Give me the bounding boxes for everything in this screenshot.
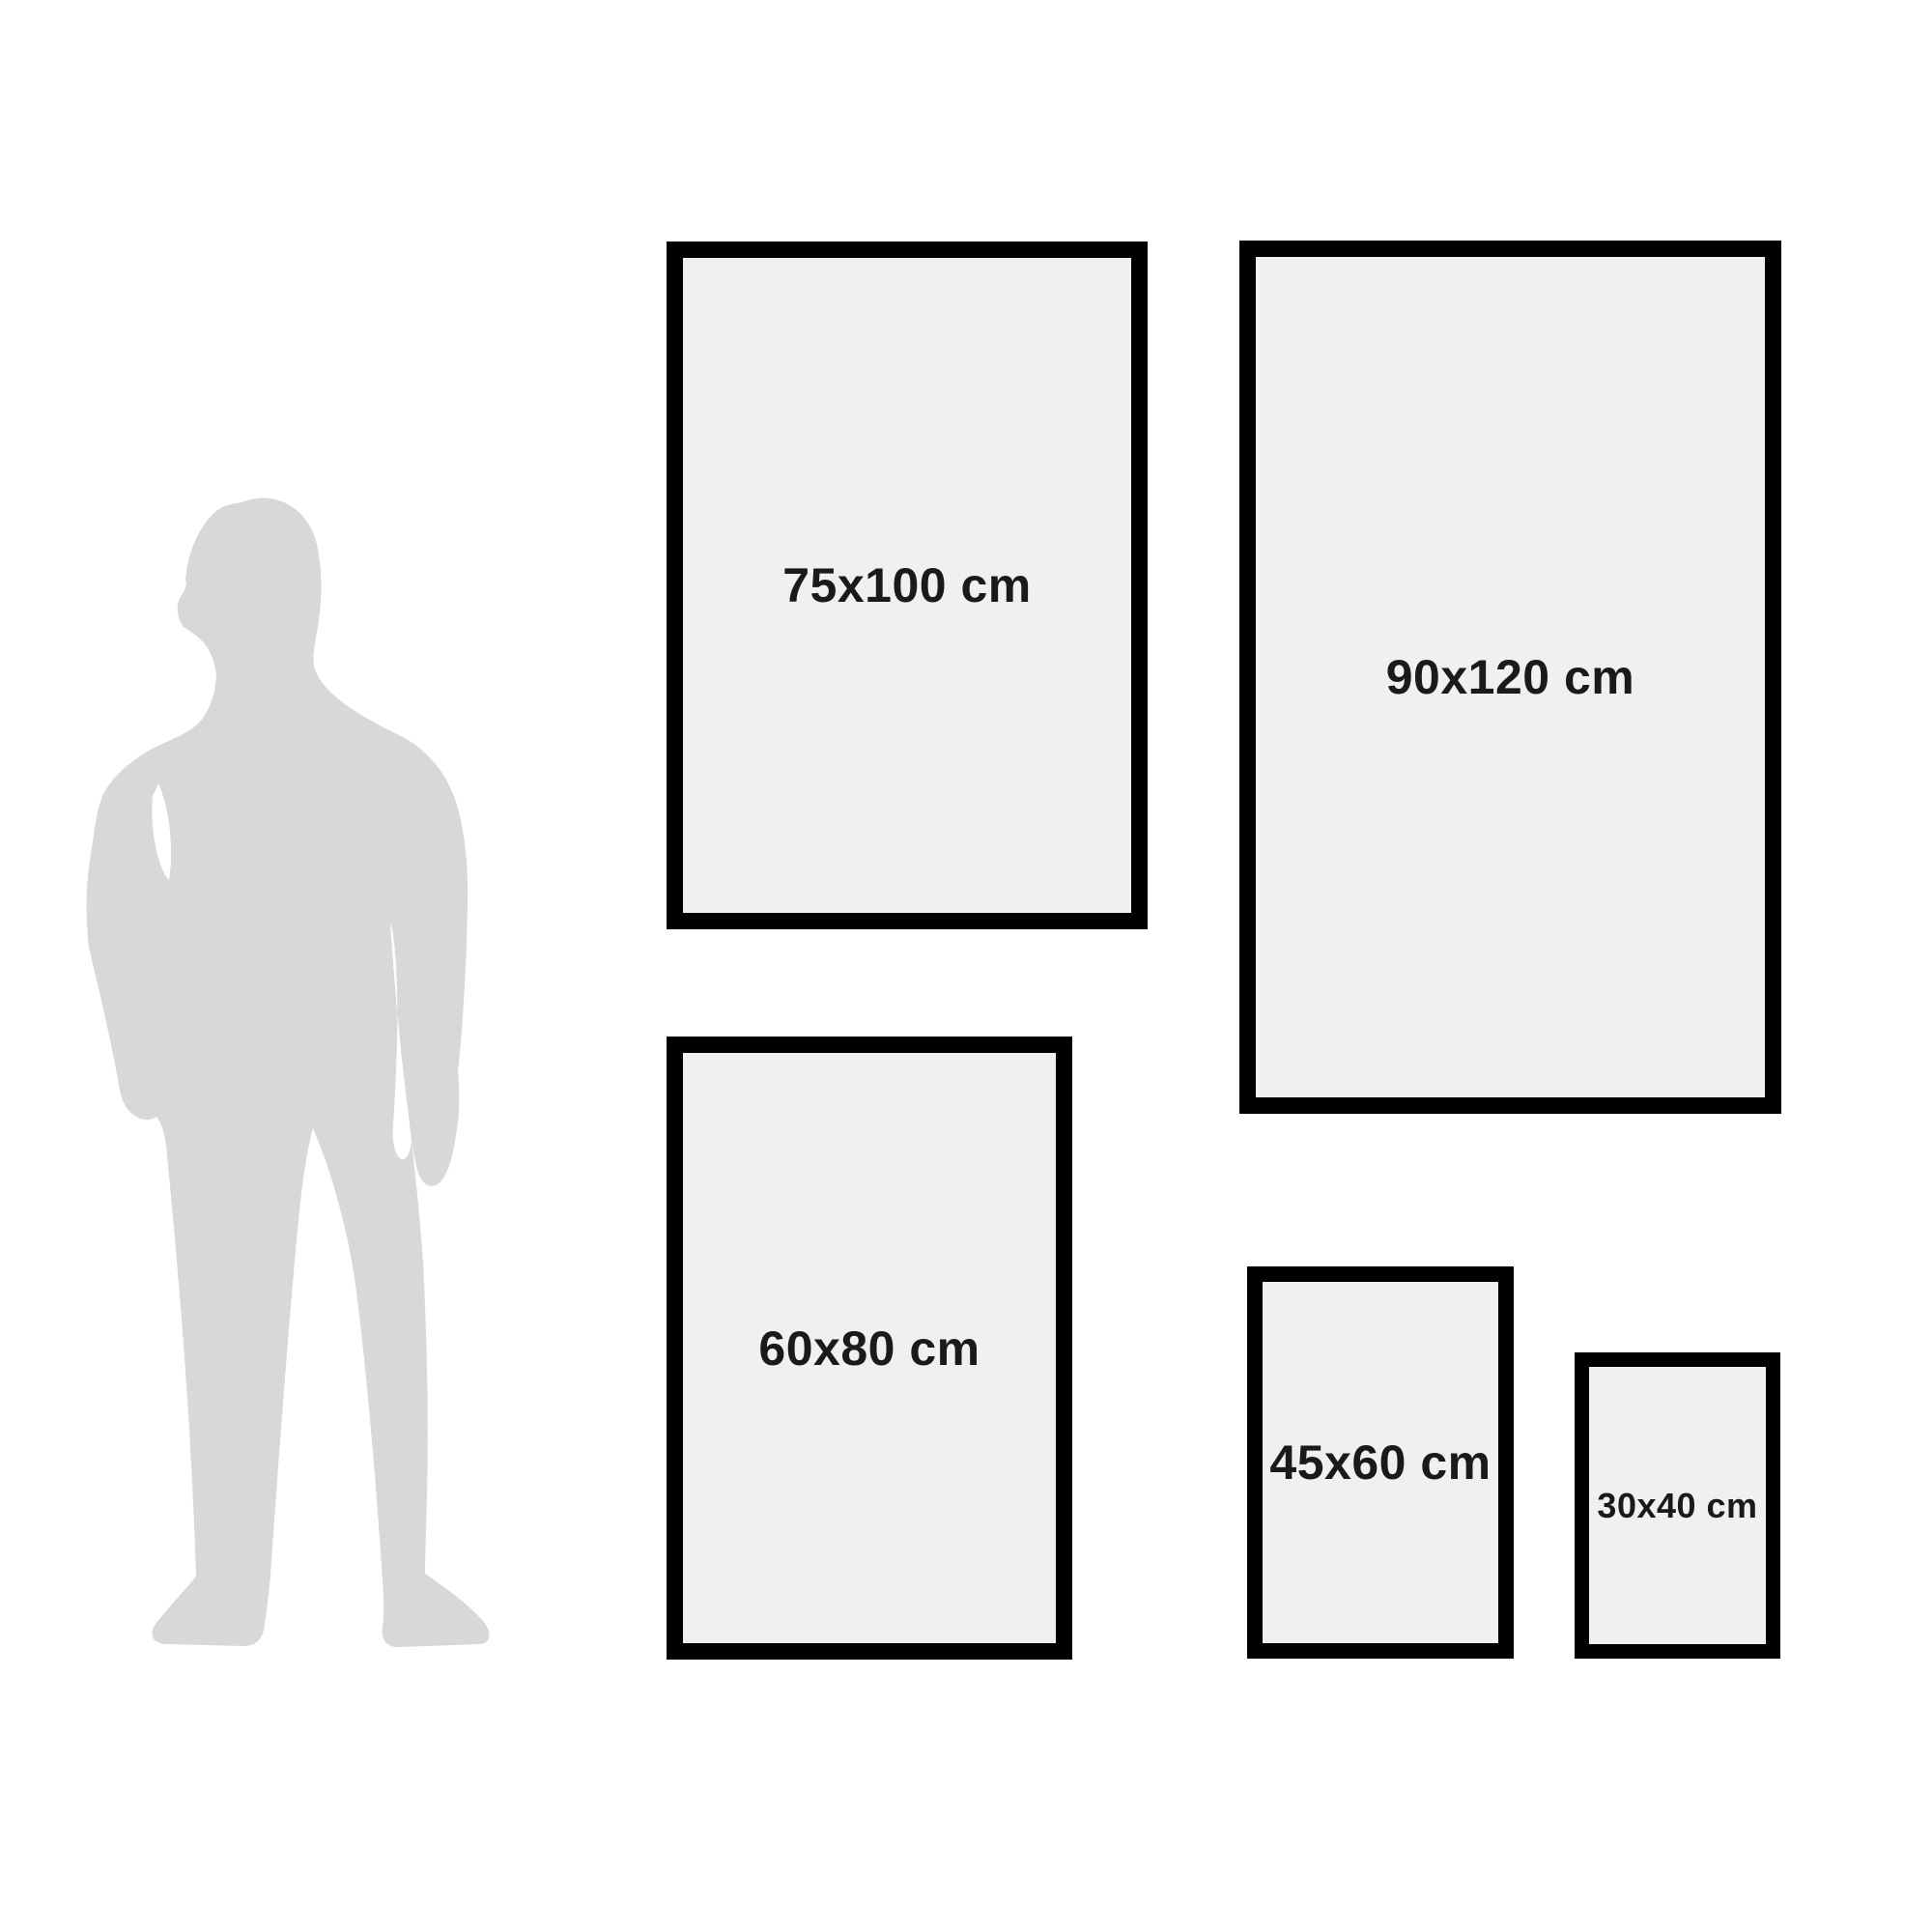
- person-silhouette-path: [87, 498, 490, 1648]
- frame-30x40: 30x40 cm: [1575, 1352, 1780, 1659]
- size-label-75x100: 75x100 cm: [782, 557, 1032, 613]
- size-label-60x80: 60x80 cm: [758, 1321, 980, 1377]
- size-label-30x40: 30x40 cm: [1597, 1486, 1757, 1526]
- person-silhouette-icon: [80, 488, 505, 1657]
- size-label-90x120: 90x120 cm: [1386, 649, 1635, 705]
- frame-60x80: 60x80 cm: [667, 1037, 1072, 1660]
- frame-75x100: 75x100 cm: [667, 241, 1148, 929]
- frame-90x120: 90x120 cm: [1239, 241, 1781, 1114]
- frame-45x60: 45x60 cm: [1247, 1266, 1514, 1659]
- poster-size-guide: 75x100 cm 90x120 cm 60x80 cm 45x60 cm 30…: [0, 0, 1932, 1932]
- size-label-45x60: 45x60 cm: [1269, 1435, 1491, 1491]
